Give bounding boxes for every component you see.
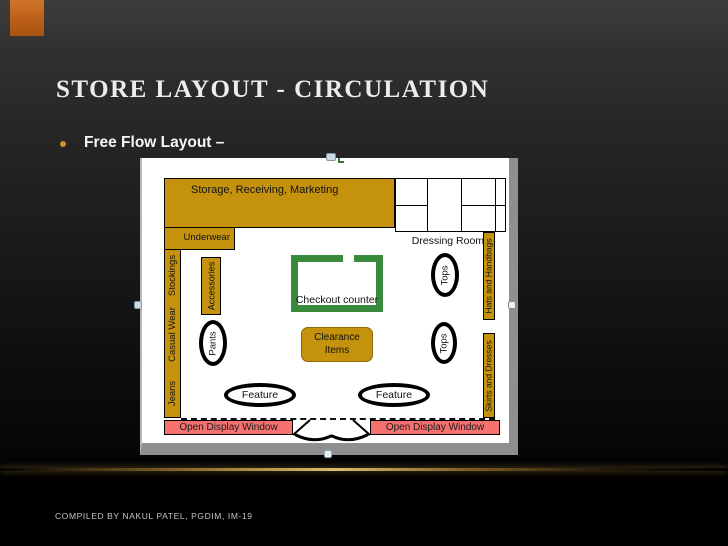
tops-fixture-lower: Tops [431, 322, 457, 364]
selection-handle-bottom[interactable] [324, 450, 332, 458]
grid-divider [461, 205, 505, 206]
slide-divider-glow [0, 468, 728, 471]
checkout-counter-label: Checkout counter [287, 294, 387, 306]
grid-divider [396, 205, 427, 206]
entrance-doorway [284, 414, 384, 444]
open-display-window-right: Open Display Window [370, 420, 500, 435]
casual-wear-rack: Casual Wear [165, 305, 180, 363]
feature-fixture-left: Feature [224, 383, 296, 407]
checkout-counter: Checkout counter [291, 255, 383, 312]
stockings-rack: Stockings [165, 250, 180, 300]
bullet-marker [60, 141, 66, 147]
pants-fixture: Pants [199, 320, 227, 366]
store-layout-image[interactable]: Storage, Receiving, Marketing Dressing R… [140, 158, 518, 455]
slide-corner-accent [10, 0, 44, 36]
selection-handle-right[interactable] [508, 301, 516, 309]
presentation-slide: STORE LAYOUT - CIRCULATION Free Flow Lay… [0, 0, 728, 546]
hats-and-handbags-rack: Hats and Handbags [483, 232, 495, 320]
accessories-fixture: Accessories [201, 257, 221, 315]
bullet-item-text: Free Flow Layout – [84, 134, 224, 152]
dressing-rooms-grid [395, 178, 506, 232]
storage-receiving-marketing-area: Storage, Receiving, Marketing [164, 178, 395, 228]
jeans-rack: Jeans [165, 368, 180, 418]
grid-divider [427, 179, 428, 231]
selection-handle-left[interactable] [134, 301, 142, 309]
skirts-and-dresses-rack: Skirts and Dresses [483, 333, 495, 418]
footer-credit: COMPILED BY NAKUL PATEL, PGDIM, IM-19 [55, 511, 253, 521]
checkout-wall [291, 255, 343, 262]
underwear-shelf: Underwear [164, 228, 235, 250]
left-wall-racks: Stockings Casual Wear Jeans [164, 250, 181, 418]
checkout-wall [354, 255, 383, 262]
slide-title: STORE LAYOUT - CIRCULATION [56, 76, 489, 104]
rotate-handle-mark[interactable] [338, 158, 344, 163]
tops-fixture-upper: Tops [431, 253, 459, 297]
selection-handle-top[interactable] [326, 153, 336, 161]
open-display-window-left: Open Display Window [164, 420, 293, 435]
floor-plan: Storage, Receiving, Marketing Dressing R… [164, 178, 506, 435]
checkout-wall [291, 305, 383, 312]
feature-fixture-right: Feature [358, 383, 430, 407]
clearance-items-table: Clearance Items [301, 327, 373, 362]
